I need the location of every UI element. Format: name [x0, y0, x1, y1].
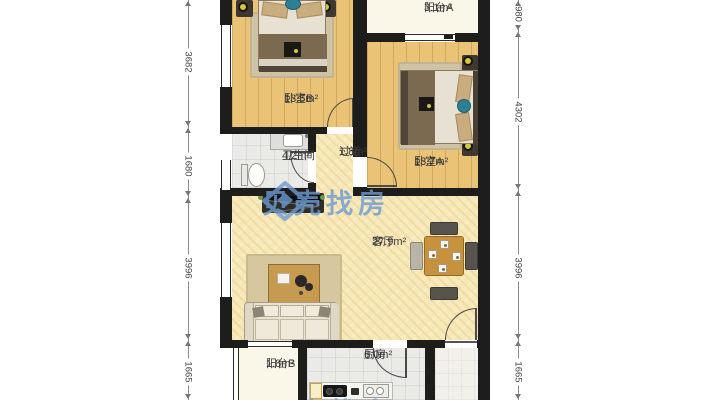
hallway-floor [316, 134, 353, 196]
dimension-arrow-icon [185, 341, 191, 346]
wall [425, 348, 435, 400]
wall [220, 87, 232, 134]
footboard [259, 66, 327, 72]
plate [428, 250, 437, 259]
decor-bowl [305, 283, 313, 291]
burner-icon [326, 388, 333, 395]
kitchen-cabinet [310, 383, 322, 399]
window-bedroom-b [221, 25, 231, 87]
room-area: 6.0m² [364, 349, 392, 363]
balcony-a-floor [367, 0, 478, 33]
room-area: 4.2m² [282, 150, 310, 164]
sofa [244, 302, 338, 342]
dimension-label: 1665 [183, 358, 194, 385]
dining-chair [430, 222, 458, 235]
dimension-label: 3996 [513, 254, 524, 281]
sofa-seat-cushion [255, 319, 279, 340]
dining-table [424, 236, 464, 276]
wall [353, 33, 405, 42]
toilet [248, 163, 265, 187]
wall [353, 42, 367, 127]
dimension-label: 1665 [513, 358, 524, 385]
dining-chair [410, 242, 423, 270]
plate [440, 240, 449, 249]
dimension-label: 1680 [183, 152, 194, 179]
wall [455, 33, 478, 42]
sink-basin [283, 134, 303, 147]
toilet-tank [241, 164, 248, 186]
sink-bowl [366, 387, 374, 395]
wall [298, 348, 307, 400]
dimension-arrow-icon [515, 191, 521, 196]
dimension-arrow-icon [515, 394, 521, 399]
room-area: 1.8m² [339, 146, 367, 160]
balcony-b-sliding-door [248, 341, 292, 347]
dimension-arrow-icon [185, 394, 191, 399]
dimension-arrow-icon [515, 341, 521, 346]
wall [478, 348, 490, 400]
throw-pillow [252, 306, 265, 318]
floorplan-canvas: 卧室B 13.5m² 阳台A 3.1m² 卧室A 13.7m² 卫生间 4.2m… [0, 0, 710, 400]
bed-bedroom-a [400, 70, 478, 144]
dimension-label: 980 [513, 3, 524, 25]
pillow [455, 112, 473, 142]
wall [353, 188, 490, 196]
coffee-table [268, 264, 320, 304]
bed-sheet [259, 59, 327, 66]
plant-icon [320, 195, 325, 200]
kitchen-door [405, 348, 407, 378]
wall [220, 340, 248, 348]
decor-dot [299, 291, 303, 295]
throw-pillow [318, 306, 331, 318]
dimension-arrow-icon [185, 334, 191, 339]
bed-tray [284, 42, 301, 57]
nightstand [462, 55, 478, 71]
dimension-label: 4302 [513, 98, 524, 125]
entry-door-sill [445, 341, 477, 343]
tray-dot [427, 104, 431, 108]
window-bathroom [221, 160, 231, 190]
room-area: 13.7m² [414, 156, 448, 170]
dimension-arrow-icon [515, 25, 521, 30]
wall [477, 340, 490, 348]
magazine [277, 273, 290, 284]
wall [407, 340, 445, 348]
nightstand [236, 0, 253, 17]
footboard [401, 71, 408, 145]
dining-chair [465, 242, 478, 270]
bed-bedroom-b [258, 0, 326, 71]
sofa-armrest [330, 303, 339, 343]
dimension-arrow-icon [515, 334, 521, 339]
room-area: 27.9m² [372, 236, 406, 250]
tv-console [262, 193, 324, 213]
sliding-door-handle [444, 35, 453, 39]
bedroom-a-door [367, 185, 397, 187]
sofa-seat-cushion [305, 319, 329, 340]
wall [292, 340, 373, 348]
plate [452, 252, 461, 261]
dimension-arrow-icon [515, 32, 521, 37]
wall [232, 127, 327, 134]
sofa-back-cushion [280, 305, 304, 317]
dimension-arrow-icon [515, 1, 521, 6]
lamp-icon [463, 56, 473, 66]
tray-dot [294, 49, 298, 53]
dimension-label: 3996 [183, 254, 194, 281]
dimension-arrow-icon [185, 191, 191, 196]
room-area: 13.5m² [284, 93, 318, 107]
dimension-line-right [518, 0, 519, 400]
wall [220, 188, 316, 196]
entry-corridor-floor [435, 348, 478, 400]
round-cushion [457, 99, 471, 113]
dimension-label: 3682 [183, 48, 194, 75]
wall [478, 0, 490, 348]
room-area: 1.8m² [266, 358, 294, 372]
utensil-holder [351, 388, 359, 395]
room-area: 3.1m² [424, 2, 452, 16]
wall [220, 0, 232, 25]
console-detail [268, 206, 318, 213]
dimension-arrow-icon [185, 198, 191, 203]
dimension-arrow-icon [185, 128, 191, 133]
lamp-icon [238, 2, 248, 12]
balcony-b-window [233, 348, 239, 400]
dining-chair [430, 287, 458, 300]
balcony-b-floor [239, 348, 298, 400]
sink-bowl [376, 387, 384, 395]
dimension-arrow-icon [185, 121, 191, 126]
dimension-arrow-icon [185, 1, 191, 6]
sofa-seat-cushion [280, 319, 304, 340]
plate [438, 264, 447, 273]
window-living-room [221, 223, 231, 297]
entry-door [475, 308, 477, 340]
burner-icon [336, 388, 343, 395]
dimension-arrow-icon [515, 184, 521, 189]
kitchen-counter [309, 382, 393, 400]
